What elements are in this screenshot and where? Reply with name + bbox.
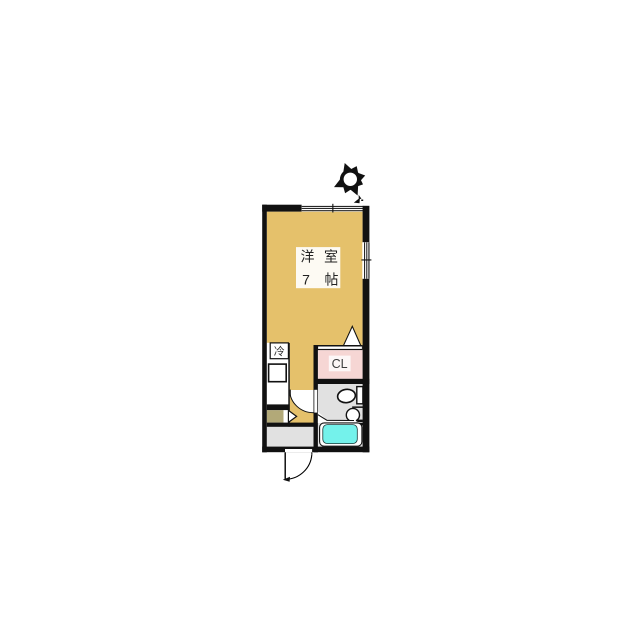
svg-text:帖: 帖: [325, 272, 339, 288]
svg-text:冷: 冷: [274, 345, 285, 358]
svg-text:洋: 洋: [301, 248, 315, 264]
svg-text:室: 室: [324, 248, 338, 264]
svg-text:CL: CL: [332, 357, 348, 371]
svg-text:7: 7: [302, 272, 310, 288]
